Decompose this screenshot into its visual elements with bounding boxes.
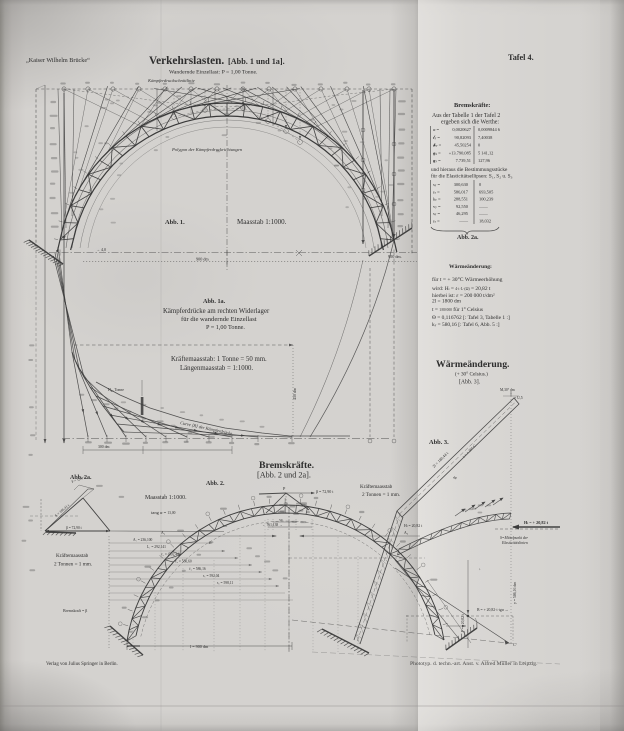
svg-text:𝓺y =: 𝓺y =: [433, 158, 441, 164]
svg-text:ky =: ky =: [433, 197, 441, 202]
svg-text:7,40038: 7,40038: [478, 135, 493, 141]
svg-text:C: C: [513, 642, 516, 647]
svg-text:Abb. 3.: Abb. 3.: [429, 439, 449, 446]
svg-text:wird: Ht = 4·t·L·(Ω) = 20,82: wird: Ht = 4·t·L·(Ω) = 20,82 t: [432, 286, 491, 292]
svg-text:Bremskraft = β: Bremskraft = β: [63, 608, 87, 613]
svg-text:P = - 20,82 t: P = - 20,82 t: [461, 614, 466, 632]
svg-text:Θ = 0,116762 [: Tafel 3, Tabel: Θ = 0,116762 [: Tafel 3, Tabelle 1 :]: [432, 314, 510, 321]
svg-text:tang α = 13,00: tang α = 13,00: [151, 510, 176, 516]
svg-text:Abb. 1.: Abb. 1.: [165, 219, 185, 226]
svg-text:A₂: A₂: [161, 531, 166, 535]
svg-text:α =: α =: [433, 127, 440, 132]
svg-text:A₁ = 236,100: A₁ = 236,100: [133, 538, 153, 543]
svg-text:Bremskräfte:: Bremskräfte:: [454, 102, 490, 109]
svg-text:ry =: ry =: [433, 189, 440, 194]
svg-text:0: 0: [479, 182, 482, 187]
svg-text:und hieraus die Bestimmungsstü: und hieraus die Bestimmungsstücke: [431, 167, 508, 173]
svg-text:𝓵y =: 𝓵y =: [433, 135, 440, 140]
svg-text:𝓱y =: 𝓱y =: [433, 143, 442, 148]
svg-text:2l = 180,44 t: 2l = 180,44 t: [431, 450, 450, 469]
svg-text:L₁ = 292,141: L₁ = 292,141: [147, 545, 166, 550]
svg-text:[Abb. 3].: [Abb. 3].: [459, 380, 481, 386]
svg-text:Tafel 4.: Tafel 4.: [508, 53, 534, 62]
svg-text:127,96: 127,96: [478, 158, 491, 164]
svg-text:0: 0: [478, 143, 481, 148]
svg-text:Aus der Tabelle 1 der Tafel 2: Aus der Tabelle 1 der Tafel 2: [432, 112, 500, 119]
svg-text:Abb. 2.: Abb. 2.: [206, 481, 225, 487]
svg-text:Polygon der Kämpferdruckrichtu: Polygon der Kämpferdruckrichtungen: [171, 147, 243, 152]
svg-text:7.739,51: 7.739,51: [456, 158, 471, 164]
svg-text:Maasstab 1:1000.: Maasstab 1:1000.: [237, 218, 287, 226]
svg-text:Wärmeänderung.: Wärmeänderung.: [436, 359, 509, 370]
svg-text:sy =: sy =: [433, 211, 440, 216]
svg-text:——: ——: [458, 219, 468, 224]
svg-text:„Kaiser Wilhelm Brücke“: „Kaiser Wilhelm Brücke“: [26, 57, 90, 64]
svg-text:[Abb. 1 und 1a].: [Abb. 1 und 1a].: [228, 57, 285, 66]
svg-text:900 dm: 900 dm: [196, 256, 209, 261]
svg-text:Kräftemaasstab: 1 Tonne = 50: Kräftemaasstab: 1 Tonne = 50 mm.: [171, 356, 267, 363]
svg-text:Verlag von Julius Springer in: Verlag von Julius Springer in Berlin.: [46, 662, 118, 667]
svg-text:0,0009844 6: 0,0009844 6: [478, 127, 501, 133]
svg-text:300,630: 300,630: [454, 182, 469, 188]
svg-text:𝓺g =: 𝓺g =: [433, 150, 441, 156]
svg-text:y = 586,16 dm: y = 586,16 dm: [513, 582, 518, 604]
svg-text:Wandernde Einzellast: P = 1,00: Wandernde Einzellast: P = 1,00 Tonne.: [169, 70, 258, 76]
svg-text:2 Tonnen = 1 mm.: 2 Tonnen = 1 mm.: [362, 492, 400, 498]
svg-text:für die wandernde Einzellast: für die wandernde Einzellast: [181, 316, 257, 323]
svg-text:Elasticitätslinien: Elasticitätslinien: [501, 541, 528, 545]
svg-text:vy =: vy =: [433, 204, 441, 209]
svg-text:Kämpferdruckschnittlinie: Kämpferdruckschnittlinie: [147, 78, 195, 83]
svg-text:ry =: ry =: [433, 219, 440, 224]
svg-text:M,30° dm: M,30° dm: [500, 388, 515, 393]
svg-text:S=Mittelpunkt der: S=Mittelpunkt der: [500, 536, 528, 540]
svg-text:ergeben sich die Werthe:: ergeben sich die Werthe:: [441, 120, 499, 126]
svg-text:+ U,5: + U,5: [514, 396, 523, 401]
svg-text:Kämpferdrücke am rechten Wider: Kämpferdrücke am rechten Widerlager: [163, 308, 270, 315]
svg-text:90,82093: 90,82093: [455, 135, 472, 141]
svg-text:0,0020627: 0,0020627: [452, 127, 471, 133]
svg-text:586,017: 586,017: [454, 189, 469, 195]
svg-text:Hav Tonne: Hav Tonne: [108, 388, 124, 393]
svg-text:β = 72,90 t: β = 72,90 t: [66, 526, 82, 531]
svg-text:——: ——: [478, 211, 488, 216]
svg-text:[Abb. 2 und 2a].: [Abb. 2 und 2a].: [257, 471, 311, 480]
svg-text:Maasstab 1:1000.: Maasstab 1:1000.: [145, 495, 187, 501]
svg-text:50: 50: [279, 518, 283, 522]
svg-text:——: ——: [478, 204, 488, 209]
svg-text:Ht = + 20,82 t: Ht = + 20,82 t: [524, 520, 549, 525]
svg-text:Abb. 1a.: Abb. 1a.: [203, 298, 226, 305]
svg-text:18,032: 18,032: [479, 219, 491, 225]
svg-text:46,295: 46,295: [456, 211, 469, 217]
svg-text:P: P: [283, 486, 286, 491]
svg-text:5 141,12: 5 141,12: [478, 150, 493, 156]
svg-text:Wärmeänderung:: Wärmeänderung:: [449, 264, 492, 270]
svg-text:300 dm: 300 dm: [98, 445, 110, 449]
svg-text:β = 72,90 t: β = 72,90 t: [316, 489, 334, 495]
svg-text:B = + 20,82·t·tgα →: B = + 20,82·t·tgα →: [477, 608, 509, 613]
svg-text:⇅: ⇅: [452, 474, 458, 480]
svg-text:Phototyp. d. techn.-art. Anst.: Phototyp. d. techn.-art. Anst. v. Alfred…: [410, 660, 538, 667]
svg-text:A₃: A₃: [404, 531, 409, 535]
svg-text:Abb. 2a.: Abb. 2a.: [457, 235, 479, 241]
svg-text:ℓ₂ = 580,60: ℓ₂ = 580,60: [175, 560, 192, 565]
svg-text:für die Elasticitätsellipsen:: für die Elasticitätsellipsen: S₁, S₂ u. …: [431, 173, 513, 180]
svg-text:(+ 30° Celsius.): (+ 30° Celsius.): [455, 371, 488, 378]
svg-text:Verkehrslasten.: Verkehrslasten.: [149, 55, 224, 67]
svg-text:für t = + 30°C Wärmeerhöhung: für t = + 30°C Wärmeerhöhung: [432, 276, 503, 283]
svg-text:45,50254: 45,50254: [455, 143, 472, 149]
svg-text:288,551: 288,551: [454, 197, 468, 203]
svg-text:Bremskräfte.: Bremskräfte.: [259, 460, 315, 471]
svg-text:2l = 1800 dm: 2l = 1800 dm: [432, 299, 462, 305]
svg-text:+13.790,085: +13.790,085: [449, 150, 472, 156]
svg-text:ℓ₃ = 586,16: ℓ₃ = 586,16: [189, 567, 206, 572]
svg-text:↓: ↓: [479, 567, 481, 571]
svg-text:s₁ = 592,04: s₁ = 592,04: [203, 574, 220, 579]
svg-text:693,505: 693,505: [479, 189, 494, 195]
svg-text:P = 1,00 Tonne.: P = 1,00 Tonne.: [206, 324, 245, 331]
svg-text:Ht = 20,82 t: Ht = 20,82 t: [404, 524, 423, 529]
svg-text:Kräftemaasstab: Kräftemaasstab: [56, 552, 89, 559]
svg-text:Kräftemaasstab: Kräftemaasstab: [360, 483, 393, 490]
svg-text:Längenmaasstab = 1:1000.: Längenmaasstab = 1:1000.: [180, 365, 253, 372]
svg-text:ky = 580,16 [: Tafel 6, Abb.: ky = 580,16 [: Tafel 6, Abb. 5 :]: [432, 321, 500, 328]
svg-text:s₂ = 598,11: s₂ = 598,11: [217, 581, 233, 586]
svg-text:l = 900 dm: l = 900 dm: [190, 644, 209, 649]
svg-text:→ 4,0: → 4,0: [96, 247, 106, 253]
svg-text:92,550: 92,550: [456, 204, 469, 210]
svg-text:450 dm: 450 dm: [292, 387, 297, 400]
svg-text:t = 1/80 000 für 1° Celsius: t = 1/80 000 für 1° Celsius: [432, 306, 483, 313]
svg-text:900 dm.: 900 dm.: [388, 254, 402, 259]
svg-text:sy =: sy =: [433, 182, 440, 187]
svg-text:2 Tonnen = 1 mm.: 2 Tonnen = 1 mm.: [54, 562, 92, 568]
svg-text:ℓ₁ = (592,44): ℓ₁ = (592,44): [161, 552, 181, 557]
svg-text:100,239: 100,239: [479, 197, 494, 203]
